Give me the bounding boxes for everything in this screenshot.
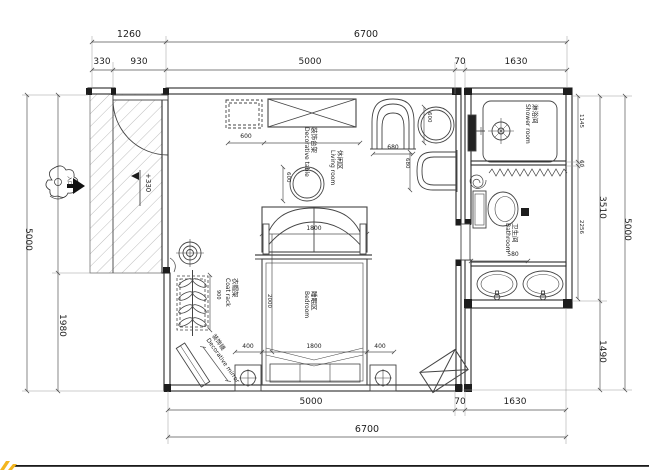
room-label-bathroom: 卫生间 Bathroom — [503, 223, 519, 252]
dim-table-600: 600 — [285, 172, 291, 183]
dim-bottom-1630: 1630 — [485, 398, 545, 407]
room-label-shower-zh: 淋浴间 — [531, 104, 539, 144]
lounge-chair-1 — [372, 99, 414, 149]
room-label-bedroom: 睡眠区 Bedroom — [302, 291, 318, 318]
dim-bath-580: 580 — [500, 252, 526, 258]
item-label-coat-rack: 衣帽架 Coat rack — [223, 278, 239, 307]
ceiling-fixture-icon — [170, 239, 204, 272]
side-table — [418, 107, 454, 143]
dim-top-5000: 5000 — [280, 58, 340, 67]
room-label-shower: 淋浴间 Shower room — [523, 104, 539, 144]
room-label-bedroom-en: Bedroom — [302, 291, 310, 318]
shower-head-icon — [488, 118, 514, 144]
shower-tray — [483, 101, 557, 162]
dim-bed-2000: 2000 — [266, 294, 272, 308]
dim-right-1490: 1490 — [597, 340, 606, 363]
item-label-coat-rack-zh: 衣帽架 — [231, 278, 239, 307]
dim-left-5000: 5000 — [23, 228, 32, 251]
entry-arrow-icon — [73, 178, 85, 194]
room-label-bathroom-en: Bathroom — [503, 223, 511, 252]
dim-bed-foot-1800: 1800 — [300, 344, 328, 350]
dim-top-930: 930 — [121, 58, 157, 67]
room-label-living-en: Living room — [328, 150, 336, 185]
dim-top-1630: 1630 — [486, 58, 546, 67]
dim-side-table-600: 600 — [426, 112, 432, 123]
dim-bed-head-1800: 1800 — [300, 226, 328, 232]
floor-plan-canvas: 1260 6700 330 930 5000 70 1630 5000 70 1… — [0, 0, 649, 473]
bathroom-fixtures — [468, 101, 567, 300]
coat-rack — [177, 270, 208, 336]
room-label-bathroom-zh: 卫生间 — [511, 223, 519, 252]
item-label-decorative-table: 装饰台架 Decorative table — [302, 127, 318, 177]
item-label-decorative-table-en: Decorative table — [302, 127, 310, 177]
entrance-label: 入口 — [66, 176, 71, 186]
dim-chair1-680: 680 — [379, 145, 407, 151]
dim-cabinet-600: 600 — [232, 134, 260, 140]
dim-left-400: 400 — [236, 344, 260, 350]
dim-bottom-6700: 6700 — [337, 425, 397, 435]
room-label-shower-en: Shower room — [523, 104, 531, 144]
plant-icon — [46, 166, 78, 198]
dim-right-400: 400 — [368, 344, 392, 350]
shower-valve — [468, 115, 485, 151]
dim-right-3510: 3510 — [597, 196, 606, 219]
floor-level-label: +330 — [144, 173, 151, 192]
dim-right-2256: 2256 — [578, 220, 584, 234]
dim-right-60: 60 — [578, 160, 584, 167]
room-label-bedroom-zh: 睡眠区 — [310, 291, 318, 318]
dim-top-1260: 1260 — [99, 30, 159, 40]
dim-top-6700: 6700 — [336, 30, 396, 40]
floor-drain-icon — [470, 175, 486, 189]
dim-left-1980: 1980 — [57, 314, 66, 337]
bathroom-door — [461, 224, 470, 260]
dim-right-5000: 5000 — [622, 218, 631, 241]
cabinets — [226, 99, 356, 128]
room-label-living: 休闲区 Living room — [328, 150, 344, 185]
dim-top-70: 70 — [445, 58, 475, 67]
dim-right-1145: 1145 — [578, 114, 584, 128]
lounge-chair-2 — [417, 152, 457, 190]
crossed-cabinet — [268, 99, 356, 127]
item-label-decorative-table-zh: 装饰台架 — [310, 127, 318, 177]
item-label-coat-rack-en: Coat rack — [223, 278, 231, 307]
dim-top-330: 330 — [84, 58, 120, 67]
vanity-sinks — [477, 271, 563, 300]
room-label-living-zh: 休闲区 — [336, 150, 344, 185]
dim-bottom-70: 70 — [445, 398, 475, 407]
foot-bench — [270, 364, 360, 382]
yellow-corner-mark — [0, 461, 10, 470]
dim-chair2-680: 680 — [404, 158, 410, 169]
dim-bottom-5000: 5000 — [281, 398, 341, 407]
shower-curtain — [489, 169, 567, 176]
dim-coat-rack-900: 900 — [215, 290, 220, 300]
page-bottom-rule — [0, 461, 649, 470]
black-square-marker — [521, 208, 529, 216]
